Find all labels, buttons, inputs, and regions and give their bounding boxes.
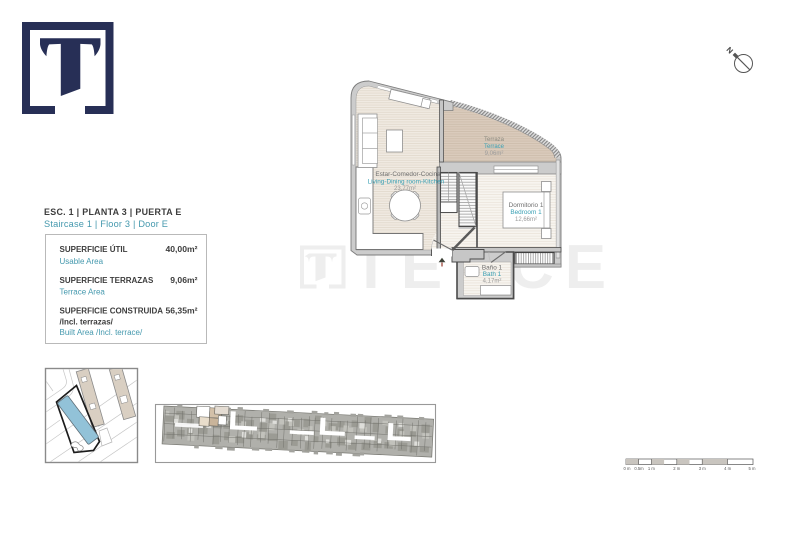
svg-text:5 m: 5 m	[749, 466, 756, 471]
svg-text:Staircase 1 | Floor 3 | Door E: Staircase 1 | Floor 3 | Door E	[44, 219, 168, 229]
svg-text:12,66m²: 12,66m²	[515, 217, 537, 223]
svg-text:/Incl. terrazas/: /Incl. terrazas/	[60, 318, 114, 327]
svg-text:2 m: 2 m	[673, 466, 680, 471]
svg-text:4,17m²: 4,17m²	[483, 279, 502, 285]
svg-text:ESC. 1 | PLANTA 3 | PUERTA E: ESC. 1 | PLANTA 3 | PUERTA E	[44, 207, 182, 217]
svg-text:56,35m²: 56,35m²	[165, 306, 197, 316]
svg-text:0 m: 0 m	[624, 466, 631, 471]
svg-text:SUPERFICIE TERRAZAS: SUPERFICIE TERRAZAS	[60, 276, 154, 285]
svg-text:1 m: 1 m	[648, 466, 655, 471]
svg-text:40,00m²: 40,00m²	[165, 244, 197, 254]
svg-text:SUPERFICIE CONSTRUIDA: SUPERFICIE CONSTRUIDA	[60, 307, 164, 316]
svg-text:Dormitorio 1: Dormitorio 1	[509, 202, 544, 209]
svg-text:Estar-Comedor-Cocina: Estar-Comedor-Cocina	[375, 171, 441, 178]
svg-text:9,06m²: 9,06m²	[485, 151, 504, 157]
svg-text:Living-Dining room-Kitchen: Living-Dining room-Kitchen	[368, 179, 445, 186]
svg-text:Terrace: Terrace	[484, 144, 505, 150]
svg-text:SUPERFICIE ÚTIL: SUPERFICIE ÚTIL	[60, 245, 128, 254]
svg-text:23,77m²: 23,77m²	[394, 186, 416, 192]
svg-text:4 m: 4 m	[724, 466, 731, 471]
svg-text:Bath 1: Bath 1	[483, 271, 502, 278]
svg-text:Terrace Area: Terrace Area	[60, 288, 106, 297]
svg-text:0.5m: 0.5m	[634, 466, 644, 471]
svg-text:Terraza: Terraza	[484, 137, 505, 143]
svg-text:Built Area /Incl. terrace/: Built Area /Incl. terrace/	[60, 328, 143, 337]
svg-text:3 m: 3 m	[699, 466, 706, 471]
svg-text:Bedroom 1: Bedroom 1	[510, 209, 542, 216]
svg-text:9,06m²: 9,06m²	[170, 275, 197, 285]
svg-text:Usable Area: Usable Area	[60, 257, 104, 266]
